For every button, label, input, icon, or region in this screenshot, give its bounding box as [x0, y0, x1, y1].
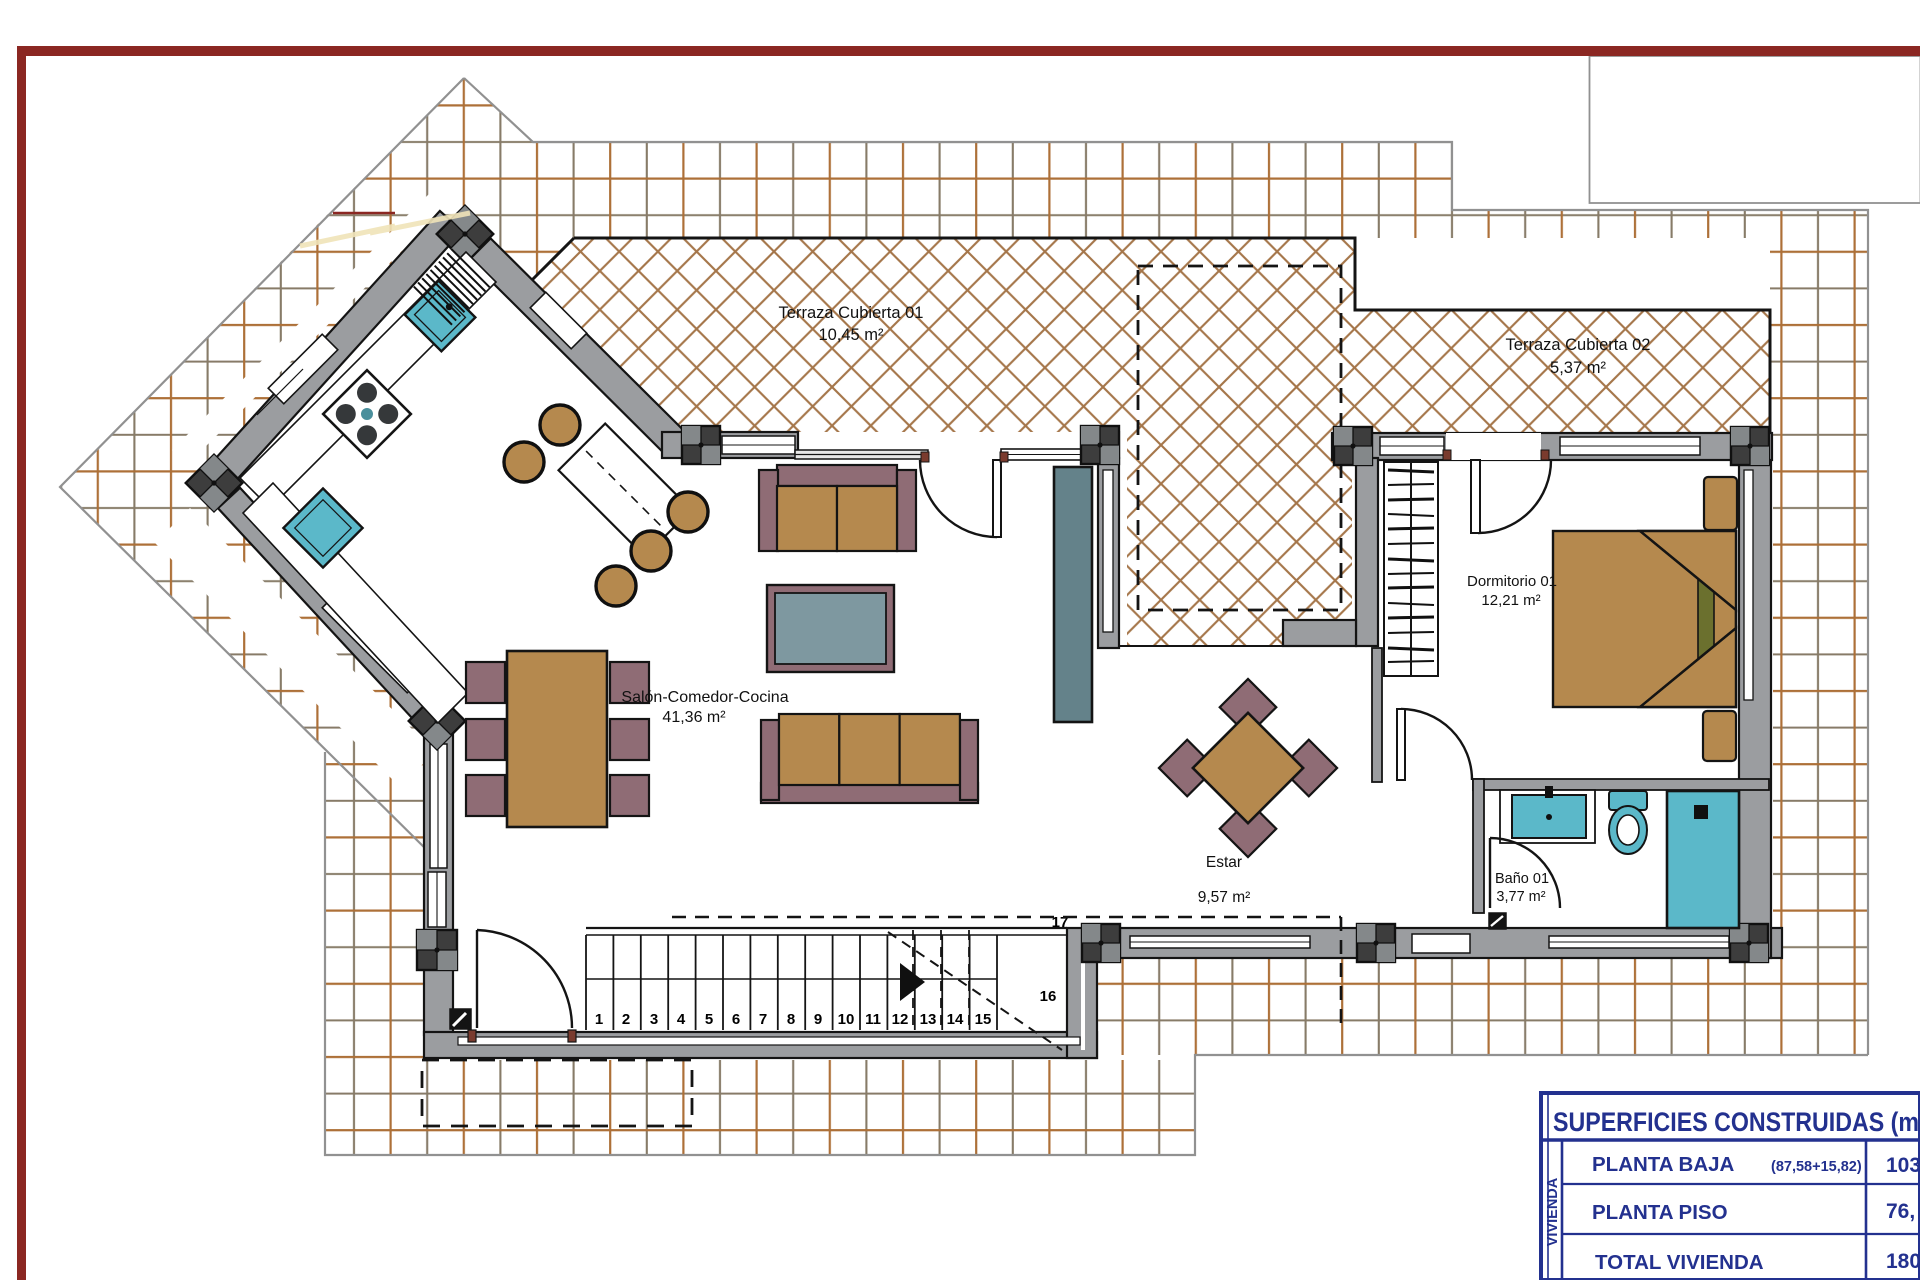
svg-text:PLANTA BAJA: PLANTA BAJA: [1592, 1153, 1735, 1176]
svg-text:76,: 76,: [1886, 1200, 1915, 1223]
svg-text:Estar: Estar: [1206, 854, 1242, 871]
svg-text:13: 13: [920, 1011, 937, 1028]
svg-text:Terraza Cubierta 01: Terraza Cubierta 01: [779, 304, 924, 322]
svg-text:2: 2: [622, 1011, 630, 1028]
svg-text:12: 12: [892, 1011, 909, 1028]
svg-text:8: 8: [787, 1011, 795, 1028]
svg-text:41,36 m²: 41,36 m²: [662, 709, 726, 726]
svg-text:1: 1: [595, 1011, 603, 1028]
svg-text:15: 15: [975, 1011, 992, 1028]
svg-text:Salón-Comedor-Cocina: Salón-Comedor-Cocina: [621, 689, 788, 706]
svg-text:4: 4: [677, 1011, 686, 1028]
svg-text:6: 6: [732, 1011, 740, 1028]
svg-text:SUPERFICIES CONSTRUIDAS (m: SUPERFICIES CONSTRUIDAS (m: [1553, 1107, 1919, 1137]
svg-text:(87,58+15,82): (87,58+15,82): [1771, 1159, 1862, 1175]
svg-text:3: 3: [650, 1011, 658, 1028]
svg-text:Terraza Cubierta 02: Terraza Cubierta 02: [1506, 336, 1651, 354]
svg-text:Baño 01: Baño 01: [1495, 871, 1549, 887]
svg-text:10: 10: [838, 1011, 855, 1028]
svg-text:12,21 m²: 12,21 m²: [1481, 592, 1540, 609]
svg-text:11: 11: [865, 1011, 881, 1028]
svg-text:PLANTA PISO: PLANTA PISO: [1592, 1201, 1728, 1224]
svg-text:14: 14: [947, 1011, 964, 1028]
svg-text:5,37 m²: 5,37 m²: [1550, 359, 1606, 377]
svg-text:7: 7: [759, 1011, 767, 1028]
svg-text:5: 5: [705, 1011, 713, 1028]
svg-text:3,77 m²: 3,77 m²: [1496, 889, 1545, 905]
svg-text:103,: 103,: [1886, 1154, 1920, 1177]
svg-text:10,45 m²: 10,45 m²: [818, 326, 884, 344]
svg-text:180,: 180,: [1886, 1250, 1920, 1273]
svg-text:Dormitorio 01: Dormitorio 01: [1467, 573, 1557, 590]
svg-text:9,57 m²: 9,57 m²: [1198, 889, 1251, 906]
svg-text:TOTAL VIVIENDA: TOTAL VIVIENDA: [1595, 1251, 1764, 1274]
svg-text:VIVIENDA: VIVIENDA: [1545, 1177, 1561, 1246]
svg-text:16: 16: [1040, 988, 1057, 1005]
svg-text:9: 9: [814, 1011, 822, 1028]
